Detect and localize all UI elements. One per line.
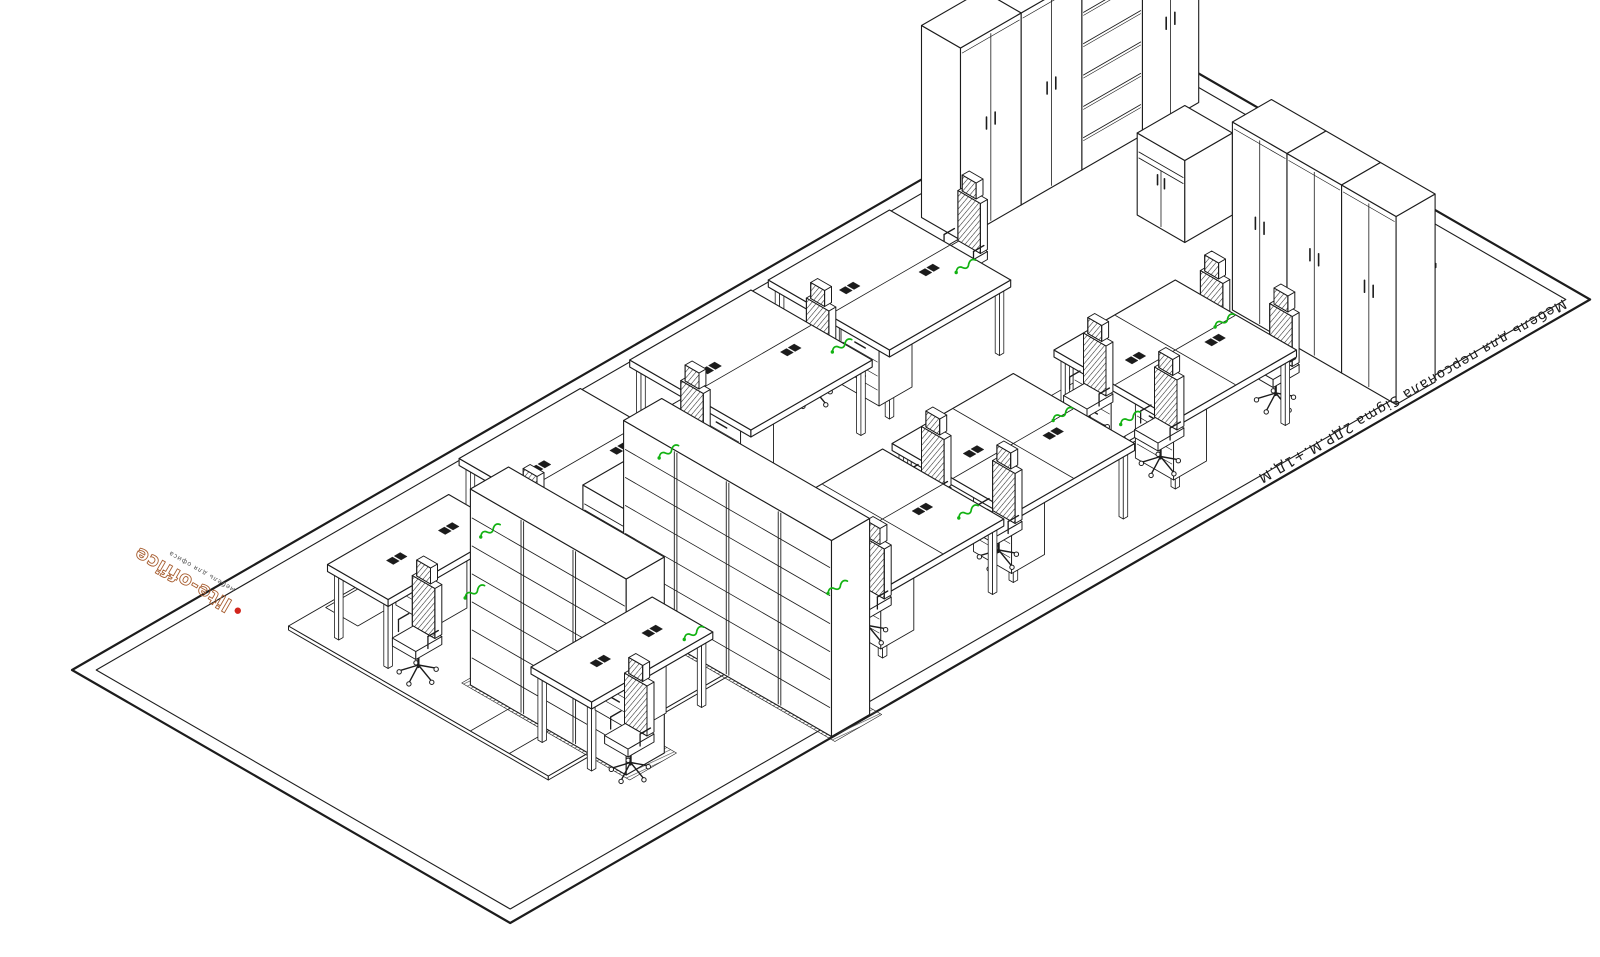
drawing-canvas: Мебель для персонала Sigma 2ДР.М.+1Д.М l… (0, 0, 1600, 957)
low-cabinet (1137, 106, 1232, 243)
wardrobe-tall (1342, 163, 1436, 405)
isometric-office-plan: Мебель для персонала Sigma 2ДР.М.+1Д.М l… (0, 0, 1600, 957)
logo-mark-icon (233, 606, 242, 615)
furniture-geometry (72, 0, 1590, 923)
